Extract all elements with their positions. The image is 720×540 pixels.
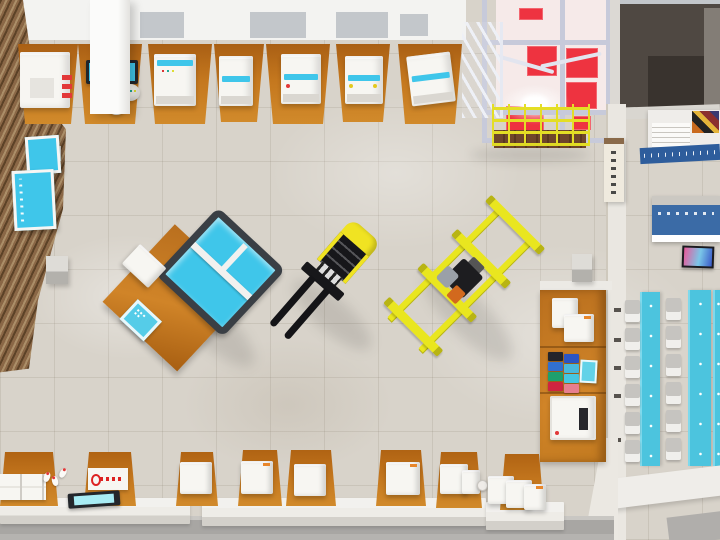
dark-room-wall xyxy=(704,8,720,112)
wall-bracket xyxy=(614,338,621,342)
shelf-ledge xyxy=(540,281,612,290)
pinned-documents xyxy=(652,123,690,148)
ceiling-recess xyxy=(140,12,184,38)
storage-box xyxy=(548,362,563,371)
workstation-machine xyxy=(524,484,546,510)
storage-box xyxy=(548,372,563,381)
wall-bracket xyxy=(614,308,621,312)
storage-box xyxy=(564,374,579,383)
shelf-divider xyxy=(540,346,606,348)
storage-unit-white xyxy=(564,314,594,342)
storage-box xyxy=(564,354,579,363)
classroom-chair xyxy=(666,382,681,404)
workstation-machine xyxy=(294,464,326,496)
status-dot xyxy=(349,84,353,88)
wall-bracket xyxy=(614,394,621,398)
machine-knob xyxy=(477,480,488,491)
classroom-table-2 xyxy=(688,290,711,466)
classroom-chair xyxy=(625,300,640,322)
machine-recess xyxy=(30,78,54,98)
ceiling-beam xyxy=(90,0,130,114)
bench-machine-dispenser xyxy=(281,54,321,104)
workstation-machine xyxy=(386,462,420,495)
wall-bracket xyxy=(614,366,621,370)
classroom-chair xyxy=(625,440,640,462)
shelf-machine xyxy=(550,396,596,440)
poster-images xyxy=(692,111,719,133)
storage-box xyxy=(564,364,579,373)
classroom-chair xyxy=(666,354,681,376)
notice-board-large xyxy=(11,169,56,231)
classroom-chair xyxy=(666,410,681,432)
gantry-carriage xyxy=(220,243,248,272)
wall-tv xyxy=(682,245,715,268)
bench-machine-dispenser xyxy=(219,56,253,106)
drawer-unit xyxy=(0,474,46,500)
ceiling-recess xyxy=(336,12,388,38)
workstation-machine xyxy=(180,462,212,494)
classroom-chair xyxy=(625,412,640,434)
bench-machine-kiosk xyxy=(154,54,196,106)
indicator-dots xyxy=(162,70,164,72)
bench-machine-dispenser xyxy=(406,52,456,107)
safety-railing xyxy=(492,104,590,146)
classroom-chair xyxy=(666,326,681,348)
storage-box xyxy=(564,384,579,393)
wall-box-with-dots xyxy=(88,468,128,490)
cyan-card xyxy=(579,360,597,384)
storage-box xyxy=(548,352,563,361)
workstation-machine xyxy=(241,461,273,494)
status-dot xyxy=(373,84,377,88)
classroom-chair xyxy=(666,298,681,320)
bench-machine-dispenser xyxy=(345,56,383,104)
classroom-chair xyxy=(625,356,640,378)
info-display xyxy=(652,196,720,242)
storage-box xyxy=(548,382,563,391)
classroom-table-1 xyxy=(640,292,660,466)
column-sign xyxy=(604,138,624,202)
mezzanine-floor-shadow xyxy=(470,148,590,162)
tv-screen xyxy=(684,248,713,267)
mezzanine-red-panel xyxy=(519,8,543,20)
classroom-chair xyxy=(666,438,681,460)
floor-pillar-left xyxy=(46,256,68,284)
classroom-chair xyxy=(625,384,640,406)
ceiling-recess xyxy=(400,14,428,36)
status-dot xyxy=(286,84,290,88)
floor-pillar-right xyxy=(572,254,592,282)
classroom-chair xyxy=(625,328,640,350)
ceiling-recess xyxy=(250,12,306,38)
red-clips xyxy=(62,74,72,98)
classroom-table-3 xyxy=(713,290,720,466)
scene xyxy=(0,0,720,540)
